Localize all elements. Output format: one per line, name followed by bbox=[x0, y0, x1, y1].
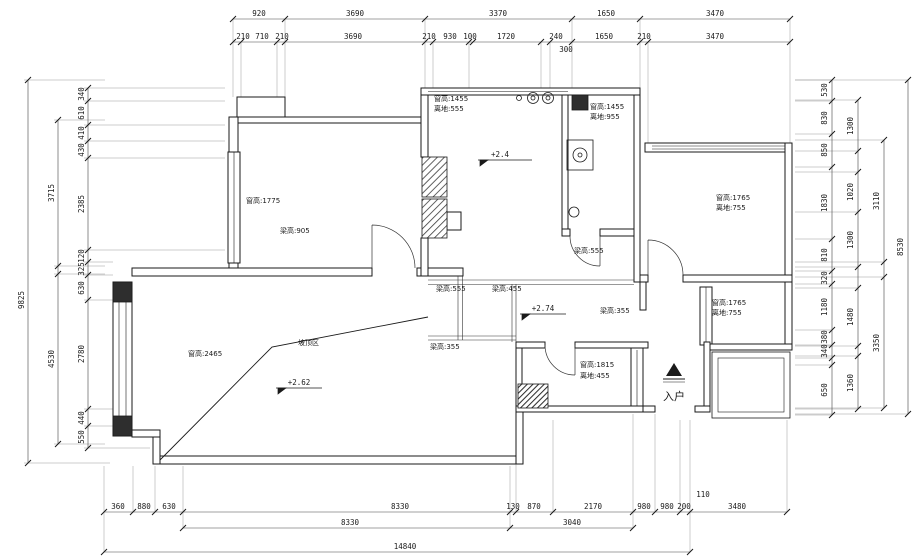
wall-bedroom2-bottom-a bbox=[640, 275, 648, 282]
window-sill-label: 离地:455 bbox=[580, 371, 610, 380]
kitchen-sink-counter bbox=[567, 140, 593, 170]
window-height-label: 窗高:2465 bbox=[188, 349, 222, 358]
wall-kitchen-right bbox=[634, 95, 640, 282]
door-study bbox=[545, 345, 575, 375]
door-bedroom2 bbox=[648, 240, 683, 275]
door-bedroom1 bbox=[372, 225, 415, 268]
dim-label: 8330 bbox=[341, 518, 360, 527]
dim-label: 920 bbox=[252, 9, 266, 18]
dim-label: 340 bbox=[77, 87, 86, 101]
dim-label: 1650 bbox=[595, 32, 614, 41]
dim-label: 340 bbox=[820, 344, 829, 358]
window-sill-label: 离地:955 bbox=[590, 112, 620, 121]
duct-box bbox=[447, 212, 461, 230]
bay-column-south bbox=[113, 416, 132, 436]
dim-label: 325 bbox=[77, 262, 86, 276]
dim-label: 210 bbox=[275, 32, 289, 41]
dim-label: 200 bbox=[677, 502, 691, 511]
window-sill-label: 离地:755 bbox=[716, 203, 746, 212]
beam-height-label: 梁高:555 bbox=[574, 246, 604, 255]
entry-label: 入户 bbox=[663, 389, 685, 403]
dim-label: 210 bbox=[422, 32, 436, 41]
dim-label: 930 bbox=[443, 32, 457, 41]
beam-height-label: 梁高:905 bbox=[280, 226, 310, 235]
dim-label: 1650 bbox=[597, 9, 616, 18]
dim-label: 1180 bbox=[820, 297, 829, 316]
dim-label: 210 bbox=[236, 32, 250, 41]
wall-bedroom1-top bbox=[233, 117, 425, 123]
beam-height-label: 梁高:455 bbox=[492, 284, 522, 293]
dim-label: 3715 bbox=[47, 184, 56, 202]
dim-label: 850 bbox=[820, 143, 829, 157]
dim-label: 710 bbox=[255, 32, 269, 41]
entry-platform-outer bbox=[712, 352, 790, 418]
beam-height-label: 梁高:555 bbox=[436, 284, 466, 293]
dim-label: 650 bbox=[820, 383, 829, 397]
dim-label: 100 bbox=[463, 32, 477, 41]
dim-label: 120 bbox=[77, 249, 86, 263]
entry-arrow-icon bbox=[666, 363, 682, 376]
dim-label: 1300 bbox=[846, 230, 855, 249]
dim-label: 380 bbox=[820, 330, 829, 344]
window-sill-label: 离地:755 bbox=[712, 308, 742, 317]
dim-label: 630 bbox=[162, 502, 176, 511]
dim-label: 2385 bbox=[77, 195, 86, 213]
entry-platform-inner bbox=[718, 358, 784, 412]
dim-label: 530 bbox=[820, 83, 829, 97]
floor-drain-icon bbox=[569, 207, 579, 217]
fixtures bbox=[517, 93, 594, 218]
wall-bedroom1-left-upper bbox=[229, 117, 238, 152]
dim-label: 830 bbox=[820, 111, 829, 125]
dim-top: 920 3690 3370 1650 3470 210 710 210 3690… bbox=[236, 9, 724, 54]
sloped-ceiling-line bbox=[160, 317, 428, 460]
wall-study-top-b bbox=[575, 342, 648, 348]
dim-label: 3040 bbox=[563, 518, 582, 527]
hob-knob-icon bbox=[517, 96, 522, 101]
flue-solid bbox=[572, 95, 588, 110]
wall-entry-bottom-a bbox=[643, 406, 655, 412]
wall-living-south bbox=[153, 456, 523, 464]
dim-label: 210 bbox=[637, 32, 651, 41]
dim-label: 110 bbox=[696, 490, 710, 499]
dim-label: 630 bbox=[77, 281, 86, 295]
window-height-label: 窗高:1765 bbox=[716, 193, 750, 202]
level-flag-icon bbox=[278, 388, 286, 394]
dim-label: 980 bbox=[637, 502, 651, 511]
wall-bay-corner-stub bbox=[153, 437, 160, 464]
plan-annotations: 窗高:1455 离地:555 窗高:1455 离地:955 窗高:1775 梁高… bbox=[188, 94, 750, 403]
dim-label: 870 bbox=[527, 502, 541, 511]
wall-living-south-step bbox=[516, 412, 523, 464]
window-height-label: 窗高:1765 bbox=[712, 298, 746, 307]
dim-label: 1300 bbox=[846, 116, 855, 135]
walls bbox=[113, 88, 792, 464]
dim-label: 3480 bbox=[728, 502, 747, 511]
dim-label: 880 bbox=[137, 502, 151, 511]
window-bedroom2-north bbox=[645, 143, 792, 152]
hatched-shaft-lower bbox=[422, 199, 447, 238]
dim-label: 1020 bbox=[846, 182, 855, 201]
wall-east bbox=[785, 143, 792, 350]
dim-label: 8530 bbox=[896, 237, 905, 256]
dim-label: 410 bbox=[77, 126, 86, 140]
dim-label: 360 bbox=[111, 502, 125, 511]
dim-label: 1360 bbox=[846, 373, 855, 392]
dim-label: 440 bbox=[77, 411, 86, 425]
dim-label: 3690 bbox=[346, 9, 365, 18]
dim-label: 130 bbox=[506, 502, 520, 511]
floor-plan-canvas: 920 3690 3370 1650 3470 210 710 210 3690… bbox=[0, 0, 920, 560]
wall-living-north-left bbox=[132, 268, 372, 276]
dim-label: 8330 bbox=[391, 502, 410, 511]
beam-height-label: 梁高:355 bbox=[600, 306, 630, 315]
dim-label: 300 bbox=[559, 45, 573, 54]
window-height-label: 窗高:1455 bbox=[590, 102, 624, 111]
wall-hall-east bbox=[640, 282, 646, 310]
wall-kitchen-block-left-upper bbox=[421, 88, 428, 157]
dim-left: 9825 3715 4530 340 610 410 430 2385 120 … bbox=[17, 87, 86, 444]
dim-label: 320 bbox=[820, 271, 829, 285]
bay-column-north bbox=[113, 282, 132, 302]
bay-window-frame bbox=[113, 282, 132, 436]
wall-kitchen-bottom-a bbox=[562, 229, 570, 236]
floor-plan-page: 920 3690 3370 1650 3470 210 710 210 3690… bbox=[0, 0, 920, 560]
dim-label: 3370 bbox=[489, 9, 508, 18]
wall-balcony-bottom bbox=[706, 344, 792, 350]
level-flag-icon bbox=[522, 314, 530, 320]
level-flag-icon bbox=[480, 160, 488, 166]
dim-label: 2780 bbox=[77, 344, 86, 363]
dim-label: 240 bbox=[549, 32, 563, 41]
dim-label: 9825 bbox=[17, 291, 26, 309]
wall-study-top-a bbox=[516, 342, 545, 348]
window-height-label: 窗高:1815 bbox=[580, 360, 614, 369]
dim-label: 4530 bbox=[47, 349, 56, 368]
entry-marker bbox=[663, 363, 685, 382]
dim-label: 810 bbox=[820, 248, 829, 262]
window-sill-label: 离地:555 bbox=[434, 104, 464, 113]
wall-bay-south-stub bbox=[132, 430, 160, 437]
dim-label: 1480 bbox=[846, 307, 855, 326]
dim-label: 3690 bbox=[344, 32, 363, 41]
dim-label: 610 bbox=[77, 106, 86, 120]
dim-label: 550 bbox=[77, 430, 86, 444]
wall-kitchen-block-left-lower bbox=[421, 238, 428, 276]
dim-label: 3110 bbox=[872, 191, 881, 210]
wall-entry-bottom-b bbox=[695, 406, 710, 412]
elevation-value: +2.74 bbox=[532, 304, 555, 313]
dim-label: 14840 bbox=[394, 542, 417, 551]
window-height-label: 窗高:1455 bbox=[434, 94, 468, 103]
hatched-shaft-upper bbox=[422, 157, 447, 197]
wall-bedroom2-bottom-b bbox=[683, 275, 792, 282]
dim-label: 430 bbox=[77, 143, 86, 157]
elevation-value: +2.4 bbox=[491, 150, 510, 159]
dim-bottom: 360 880 630 8330 130 870 2170 980 980 20… bbox=[111, 490, 746, 551]
beam-height-label: 梁高:355 bbox=[430, 342, 460, 351]
dim-right: 530 830 850 1830 810 320 1180 380 340 65… bbox=[820, 83, 905, 397]
dim-label: 3470 bbox=[706, 32, 725, 41]
dim-label: 3470 bbox=[706, 9, 725, 18]
sink-basin-icon bbox=[573, 148, 587, 162]
sloped-ceiling-label: 坡顶区 bbox=[298, 338, 319, 347]
dim-label: 2170 bbox=[584, 502, 603, 511]
dim-label: 1830 bbox=[820, 193, 829, 212]
elevation-value: +2.62 bbox=[288, 378, 311, 387]
window-height-label: 窗高:1775 bbox=[246, 196, 280, 205]
wall-entry-right bbox=[704, 342, 710, 412]
dim-label: 3350 bbox=[872, 333, 881, 352]
hatched-shaft-south bbox=[518, 384, 548, 408]
dim-label: 1720 bbox=[497, 32, 516, 41]
dim-label: 980 bbox=[660, 502, 674, 511]
